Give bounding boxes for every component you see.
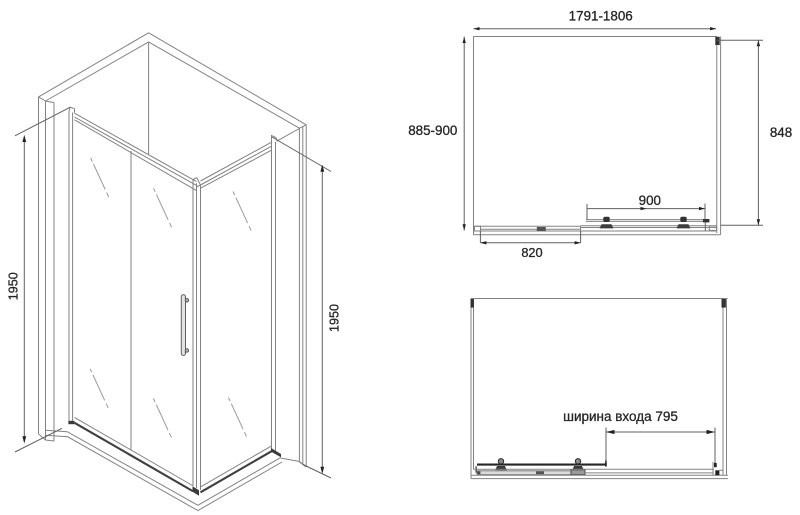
svg-text:848: 848 bbox=[770, 125, 792, 140]
svg-text:1950: 1950 bbox=[7, 272, 21, 300]
svg-text:ширина входа 795: ширина входа 795 bbox=[563, 409, 678, 424]
svg-text:820: 820 bbox=[521, 245, 542, 260]
svg-text:1950: 1950 bbox=[328, 304, 342, 332]
svg-text:885-900: 885-900 bbox=[408, 123, 457, 138]
svg-text:900: 900 bbox=[639, 193, 661, 208]
svg-text:1791-1806: 1791-1806 bbox=[569, 9, 633, 24]
